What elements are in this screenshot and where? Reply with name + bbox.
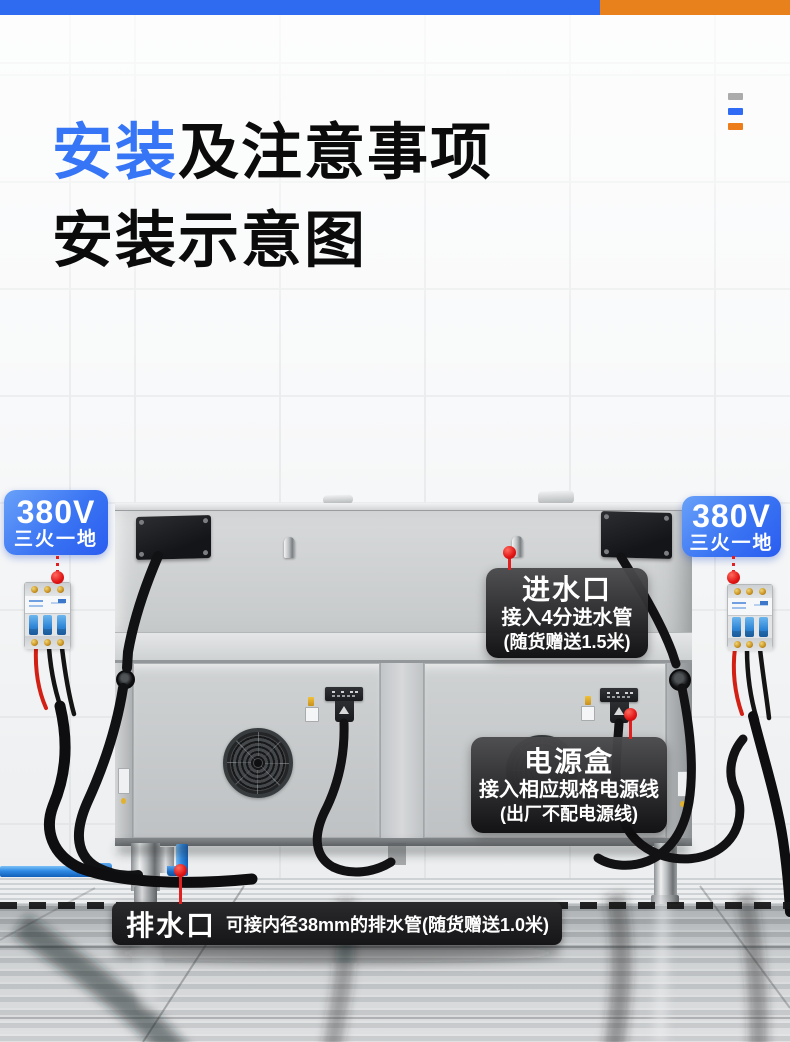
pointer-line-water-inlet [508,558,511,570]
top-accent-bar-orange [600,0,790,15]
water-inlet-line2: (随货赠送1.5米) [486,631,648,654]
electrical-junction-box-right [601,511,672,559]
marker-dot-water-inlet [503,546,516,559]
title-line2: 安装示意图 [52,196,493,284]
machine-left-column [115,663,133,838]
machine-foot-left [134,886,157,903]
machine-top-rim [115,503,692,511]
cable-grommet-left [116,670,135,689]
title-highlight: 安装 [52,118,178,186]
water-inlet-line1: 接入4分进水管 [486,606,648,631]
title-rest: 及注意事项 [178,118,493,186]
rating-label-right [581,706,595,721]
rating-label-left [305,707,319,722]
cable-grommet-right [669,669,691,691]
voltage-value-right: 380V [682,499,781,533]
callout-drain: 排水口 可接内径38mm的排水管(随货赠送1.0米) [112,902,562,945]
side-warning-label-left [118,768,130,794]
pointer-line-drain [179,876,182,904]
cooling-fan-left [223,728,293,798]
machine-leg-inner [388,843,406,865]
menu-bar-orange [728,123,743,130]
marker-dot-power-box [624,708,637,721]
wiring-label-left: 三火一地 [4,529,108,551]
pointer-line-power-box [629,720,632,739]
installation-infographic: 安装及注意事项 安装示意图 [0,0,790,1042]
page-title: 安装及注意事项 安装示意图 [52,108,493,284]
breaker-switches-right [728,615,772,638]
breaker-switches-left [25,613,70,636]
power-box-title: 电源盒 [471,745,667,778]
water-inlet-fitting-left [284,537,295,558]
side-dot-left [121,798,126,804]
machine-leg-left [131,843,160,891]
side-warning-label-right [677,771,689,797]
circuit-breaker-right [727,584,773,648]
warning-sticker-yellow-right [585,696,591,705]
drain-pipe-coupler [92,863,112,878]
power-box-line1: 接入相应规格电源线 [471,778,667,803]
machine-center-strip [380,663,424,838]
power-box-line2: (出厂不配电源线) [471,803,667,826]
callout-power-box: 电源盒 接入相应规格电源线 (出厂不配电源线) [471,737,667,833]
voltage-value-left: 380V [4,495,108,529]
voltage-badge-right: 380V 三火一地 [682,496,781,557]
marker-dot-breaker-right [727,571,740,584]
callout-water-inlet: 进水口 接入4分进水管 (随货赠送1.5米) [486,568,648,658]
drain-title: 排水口 [126,904,216,944]
title-line1: 安装及注意事项 [52,108,493,196]
voltage-badge-left: 380V 三火一地 [4,490,108,555]
drain-desc: 可接内径38mm的排水管(随货赠送1.0米) [226,911,549,937]
power-terminal-left [325,687,363,722]
marker-dot-drain [174,864,187,877]
circuit-breaker-left [24,582,71,648]
menu-bar-blue [728,108,743,115]
machine-leg-right [654,843,677,899]
list-menu-icon [728,93,743,138]
warning-sticker-yellow-left [308,697,314,706]
side-dot-right [680,801,685,807]
electrical-junction-box-left [136,515,211,560]
top-accent-bar-blue [0,0,600,15]
water-inlet-title: 进水口 [486,573,648,606]
marker-dot-breaker-left [51,571,64,584]
wiring-label-right: 三火一地 [682,533,781,555]
menu-bar-gray [728,93,743,100]
